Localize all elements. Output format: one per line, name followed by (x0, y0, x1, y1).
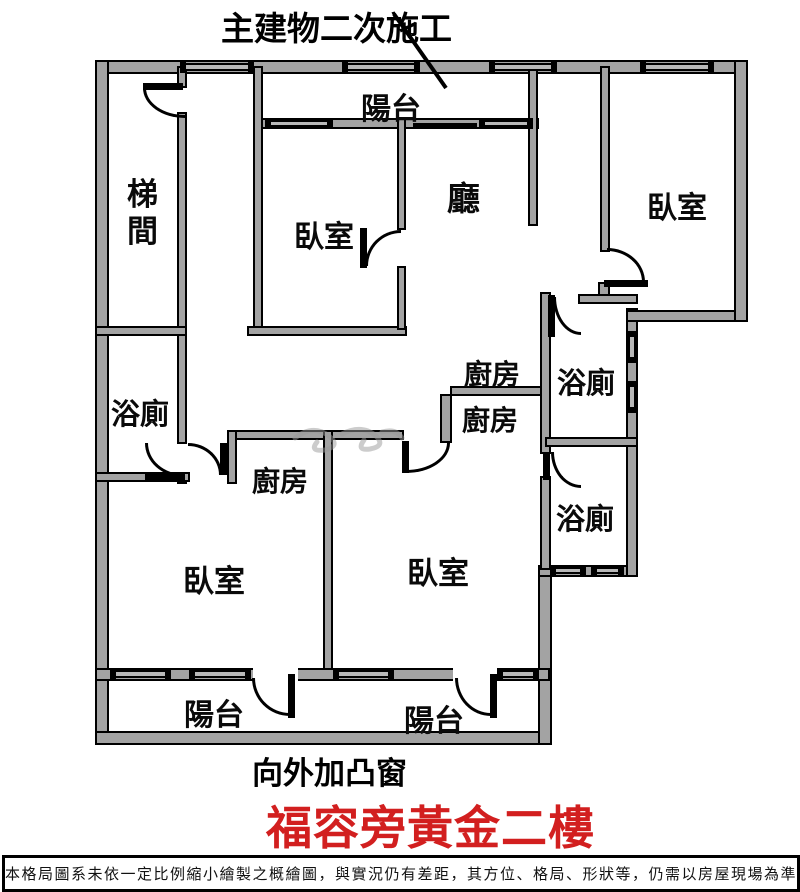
room-label-living-room: 廳 (447, 172, 480, 220)
floor-plan-page: 梯間 陽台 臥室 廳 臥室 浴廁 廚房 廚房 浴廁 浴廁 廚房 臥室 臥室 陽台… (0, 0, 800, 892)
room-label-bedroom-bottom-left: 臥室 (183, 556, 245, 601)
room-label-bedroom-top-right: 臥室 (647, 183, 707, 227)
annotation-outward-bay-window: 向外加凸窗 (252, 748, 407, 793)
room-label-balcony-bottom-right: 陽台 (404, 696, 464, 740)
annotation-main-building-secondary-construction: 主建物二次施工 (221, 2, 452, 50)
room-label-kitchen-lower: 廚房 (462, 399, 518, 439)
room-label-bedroom-bottom-middle: 臥室 (407, 548, 469, 593)
room-label-bathroom-right-upper: 浴廁 (557, 360, 615, 402)
room-label-balcony-bottom-left: 陽台 (184, 690, 244, 734)
room-label-kitchen-upper: 廚房 (464, 353, 520, 393)
disclaimer-text: 本格局圖系未依一定比例縮小繪製之概繪圖，與實況仍有差距，其方位、格局、形狀等，仍… (5, 863, 797, 884)
room-label-bathroom-left: 浴廁 (111, 391, 169, 433)
disclaimer-box: 本格局圖系未依一定比例縮小繪製之概繪圖，與實況仍有差距，其方位、格局、形狀等，仍… (2, 855, 800, 892)
sliding-door-line (413, 123, 477, 127)
room-label-balcony-top: 陽台 (361, 84, 421, 128)
room-label-bathroom-right-lower: 浴廁 (556, 496, 614, 538)
room-label-stairwell: 梯間 (127, 176, 160, 250)
listing-title: 福容旁黃金二樓 (266, 792, 595, 858)
room-label-bedroom-top-middle: 臥室 (294, 212, 354, 256)
room-label-kitchen-bottom-left: 廚房 (252, 460, 308, 500)
